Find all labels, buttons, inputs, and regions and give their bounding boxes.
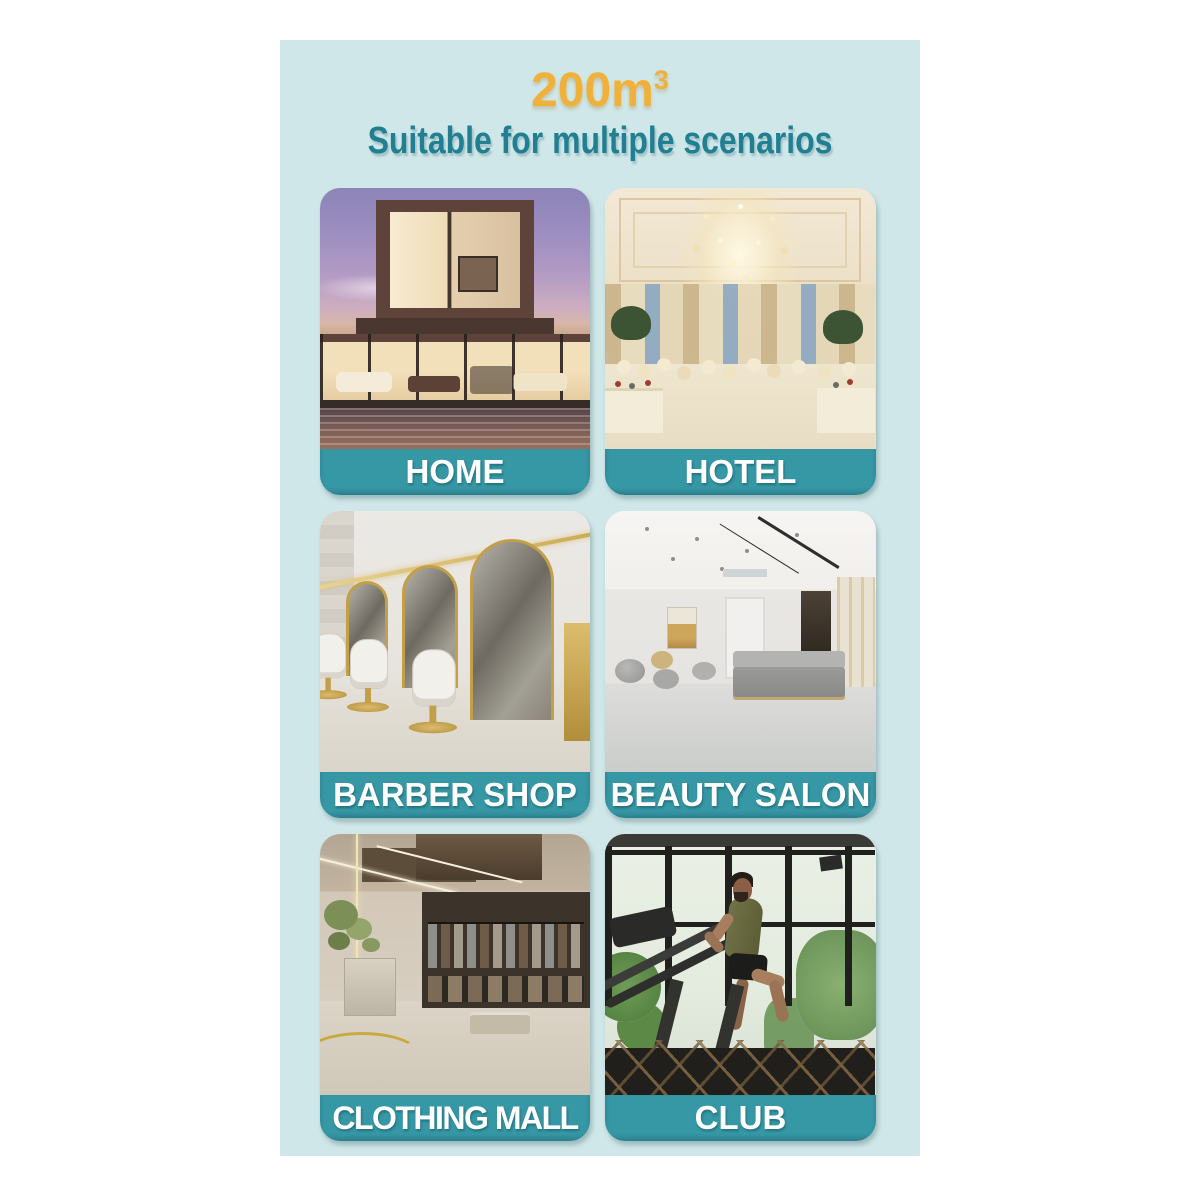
scenario-label: HOME [406,449,505,495]
scenario-label: BARBER SHOP [333,772,577,818]
ceiling-vent [723,569,767,577]
scenario-card-beauty-salon: BEAUTY SALON [605,511,876,818]
round-stools [615,659,645,683]
label-band: HOME [320,449,590,495]
planter-box [344,958,396,1016]
scenario-card-clothing-mall: CLOTHING MALL [320,834,590,1141]
scenario-card-home: HOME [320,188,590,495]
roof-overhang [356,318,554,334]
label-band: CLUB [605,1095,876,1141]
styling-chair [412,649,456,707]
runner-torso [724,896,764,959]
potted-plant [611,306,651,340]
scenarios-panel: 200m3 Suitable for multiple scenarios HO… [280,40,920,1156]
styling-chair [320,634,346,679]
patio-table [470,366,514,394]
chandelier [738,204,743,209]
deck-edge [320,400,590,408]
hotel-photo [605,188,876,449]
floor-curb-line [320,1032,420,1078]
arched-mirror [470,539,554,720]
label-band: BARBER SHOP [320,772,590,818]
beauty-salon-photo [605,511,876,772]
upper-storey [376,200,534,318]
volume-title: 200m3 [280,40,920,117]
dark-art-panel [801,591,831,657]
runner-beard [734,892,748,902]
scenario-card-club: CLUB [605,834,876,1141]
scenario-label: CLOTHING MALL [332,1095,577,1141]
scenario-label: CLUB [695,1095,787,1141]
living-room-sofa [336,372,392,392]
label-band: BEAUTY SALON [605,772,876,818]
home-photo [320,188,590,449]
barber-shop-photo [320,511,590,772]
display-table [470,1012,530,1034]
clothing-mall-photo [320,834,590,1095]
styling-chair [350,639,388,689]
scenario-card-hotel: HOTEL [605,188,876,495]
wood-ceiling-box [416,834,542,880]
upper-storey-windows [390,212,520,308]
label-band: CLOTHING MALL [320,1095,590,1141]
gray-sofa [733,651,845,697]
linear-light-fixture [757,516,839,569]
subtitle: Suitable for multiple scenarios [331,119,869,163]
potted-plant [324,900,358,930]
pool-reflection [320,408,590,449]
banquet-chairs [617,360,631,374]
service-table [605,388,663,433]
side-table [651,651,673,669]
folded-clothes-shelf [428,976,584,1002]
wall-artwork [667,607,697,649]
label-band: HOTEL [605,449,876,495]
volume-value: 200m [531,64,654,117]
ceiling-spotlights [645,527,649,531]
hanging-clothes-rack [428,922,584,968]
club-photo [605,834,876,1095]
volume-exponent: 3 [654,65,669,95]
scenario-grid: HOME HOTEL [320,188,876,1141]
gold-cabinet [564,623,590,741]
equipment-cross-bracing [605,1040,875,1095]
scenario-card-barber-shop: BARBER SHOP [320,511,590,818]
scenario-label: HOTEL [685,449,797,495]
scenario-label: BEAUTY SALON [611,772,871,818]
